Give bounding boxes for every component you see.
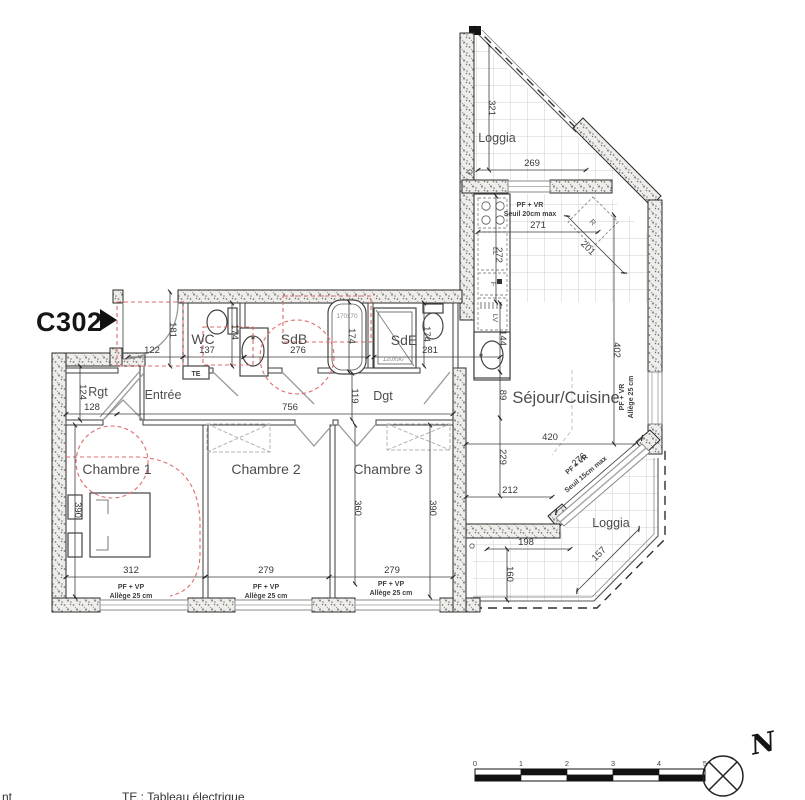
title-arrow-icon [100,309,117,331]
note-loggia-door-2: Seuil 20cm max [504,211,557,218]
north-compass: N [703,726,780,796]
dim-ch3-w: 279 [384,565,400,576]
room-label-loggia-bottom: Loggia [592,516,630,530]
wc-door [213,372,238,396]
room-label-ch3: Chambre 3 [353,461,422,477]
room-label-sdb: SdB [281,331,307,347]
plan-id: C302 [36,307,103,337]
dim-loggia-bot-w: 198 [518,537,534,548]
dim-sejour-h1: 144 [497,330,508,346]
dim-sejour-w: 420 [542,432,558,443]
legend-te-text: TE : Tableau électrique [122,790,245,800]
north-label: N [747,726,780,762]
scale-bar: 0 1 2 3 4 5 [473,759,707,781]
ch1-door [103,400,143,420]
dim-loggia-top-h: 321 [486,100,497,116]
dim-bathtub-len: 174 [346,328,357,344]
room-label-wc: WC [191,331,214,347]
note-window-ch2-1: PF + VP [253,584,280,591]
room-label-ch2: Chambre 2 [231,461,300,477]
dim-ch3-h: 390 [427,500,438,516]
note-window-ch1-2: Allège 25 cm [110,593,153,600]
dim-wc-h: 174 [229,324,240,340]
dim-loggia-top-w: 269 [524,158,540,169]
ch2-door [295,424,333,446]
room-label-sejour: Séjour/Cuisine [512,389,619,407]
note-loggia-door-1: PF + VR [517,202,544,209]
closet-ch3 [387,424,450,450]
ch3-door [338,424,376,446]
dim-sejour-w2: 212 [502,485,518,496]
note-window-ch1-1: PF + VP [118,584,145,591]
scale-3: 3 [611,759,615,768]
shower-size-label: 120x90 [382,356,404,363]
scale-2: 2 [565,759,569,768]
dim-ch2-w: 279 [258,565,274,576]
legend: nt TE : Tableau électrique [2,790,245,800]
scale-4: 4 [657,759,661,768]
dim-sde-w: 281 [422,345,438,356]
note-window-ch3-2: Allège 25 cm [370,590,413,597]
legend-left-fragment: nt [2,790,13,800]
scale-0: 0 [473,759,477,768]
bathtub-size-label: 170x70 [336,313,358,320]
note-window-right-2: Allège 25 cm [628,376,635,419]
dishwasher-label: LV [491,314,500,323]
dim-sejour-right-h: 402 [611,342,622,358]
sde-toilet-tank [423,304,443,313]
note-window-ch2-2: Allège 25 cm [245,593,288,600]
dim-ch2-h: 360 [352,500,363,516]
floor-plan: 321 269 271 272 201 144 89 229 402 420 2… [0,0,805,800]
bed [90,493,150,557]
dim-rgt-w: 128 [84,402,100,413]
oven-label: F [489,282,498,287]
dim-loggia-bot-h: 160 [504,566,515,582]
room-label-sde: SdE [391,332,417,348]
note-window-right-1: PF + VR [619,384,626,411]
washer-label: LL [491,247,500,255]
closet-ch2 [207,424,270,452]
room-label-entree: Entrée [145,388,182,402]
window-sejour-right [648,372,662,424]
dim-entree-h: 181 [167,322,178,338]
dim-kitchen-w: 271 [530,220,546,231]
note-window-ch3-1: PF + VP [378,581,405,588]
dim-entree-w: 122 [144,345,160,356]
scale-1: 1 [519,759,523,768]
dim-sde-h: 174 [421,326,432,342]
dim-ch1-h: 390 [72,502,83,518]
dim-ch1-w: 312 [123,565,139,576]
sde-door [424,372,450,404]
dim-sejour-h3: 229 [497,449,508,465]
sdb-door [282,372,314,404]
room-label-loggia-top: Loggia [478,131,516,145]
dim-corridor-h: 119 [349,388,360,403]
room-label-dgt: Dgt [373,389,393,403]
room-label-rgt: Rgt [88,385,108,399]
te-label: TE [192,371,201,378]
dim-sejour-h2: 89 [497,390,508,401]
dim-corridor-w: 756 [282,402,298,413]
dim-rgt-h: 124 [77,384,88,400]
plan-title: C302 [36,307,117,337]
room-label-ch1: Chambre 1 [82,461,151,477]
